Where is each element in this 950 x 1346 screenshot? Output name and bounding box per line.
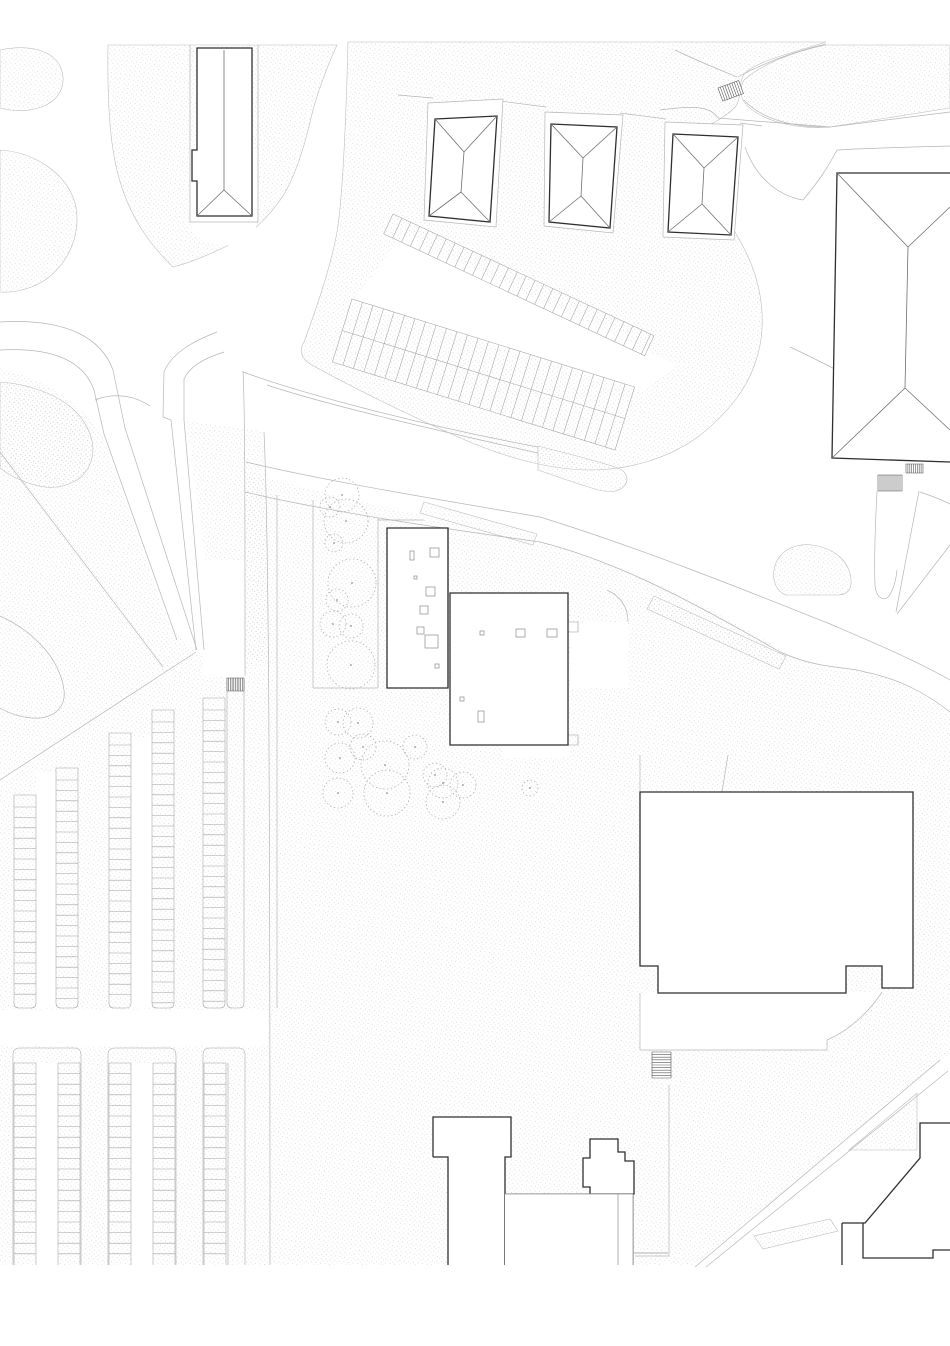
- skylight-4: [420, 606, 428, 614]
- tree-center-9: [337, 721, 339, 723]
- tree-center-4: [351, 582, 353, 584]
- tree-center-7: [350, 625, 352, 627]
- terrace-east-of-center: [570, 622, 628, 688]
- site-plan-canvas: [0, 0, 950, 1346]
- tree-center-14: [414, 746, 416, 748]
- stairs-hall-ne-b: [878, 475, 902, 491]
- terrace-below-center: [503, 745, 570, 758]
- veg-corner-northwest: [0, 48, 63, 111]
- tree-center-16: [386, 792, 388, 794]
- skylight-0: [410, 551, 414, 560]
- road-north-of-hall: [837, 146, 950, 150]
- tree-center-18: [442, 782, 444, 784]
- lawn-round-west: [0, 150, 77, 292]
- tree-center-8: [350, 664, 352, 666]
- tree-center-20: [442, 801, 444, 803]
- hall-east-body: [640, 792, 913, 993]
- aisle-upper-2: [131, 737, 152, 1008]
- slab-building-northwest-body: [192, 48, 252, 216]
- aisle-lower-1: [36, 1063, 58, 1265]
- stairs-apron: [652, 1052, 671, 1078]
- road-south-curve-2: [803, 150, 837, 200]
- lawn-island-west: [0, 382, 93, 487]
- skylight-3: [426, 587, 435, 596]
- ground-top-center: [301, 42, 826, 470]
- hall-northeast-body: [832, 173, 950, 462]
- tree-center-6: [332, 623, 334, 625]
- tree-center-11: [362, 746, 364, 748]
- road-south-curve-1: [745, 147, 803, 200]
- parking-cross-road: [0, 1010, 268, 1046]
- tree-center-13: [384, 764, 386, 766]
- skylight-7: [435, 664, 439, 668]
- landscape-berm: [774, 545, 852, 595]
- skylight-12: [478, 711, 484, 722]
- tree-center-19: [462, 784, 464, 786]
- stair-path-channel: [203, 560, 245, 677]
- island-tail: [95, 396, 150, 406]
- skylight-8: [480, 631, 484, 635]
- tree-center-17: [434, 774, 436, 776]
- aisle-lower-2: [131, 1063, 153, 1265]
- skylight-10: [547, 629, 557, 637]
- skylight-9: [516, 629, 525, 637]
- skylight-2: [414, 576, 417, 579]
- tree-center-10: [357, 722, 359, 724]
- house-2-body: [549, 124, 617, 228]
- road-island-strip: [754, 1219, 838, 1249]
- stairs-walkway: [227, 678, 244, 691]
- east-road-edge-b: [920, 492, 950, 504]
- tree-center-12: [339, 757, 341, 759]
- center-building-east-wing-body: [450, 593, 568, 745]
- tree-center-21: [529, 787, 531, 789]
- skylight-1: [430, 548, 439, 557]
- skylight-6: [425, 635, 438, 648]
- tree-center-0: [341, 494, 343, 496]
- tree-center-15: [337, 792, 339, 794]
- south-structure-body: [505, 1194, 633, 1265]
- tree-center-5: [336, 599, 338, 601]
- tree-center-3: [333, 542, 335, 544]
- skylight-5: [417, 627, 424, 634]
- tree-center-2: [345, 520, 347, 522]
- skylight-11: [460, 697, 464, 701]
- stairs-hall-ne-a: [906, 464, 923, 473]
- site-plan: [0, 0, 950, 1346]
- aisle-upper-1: [36, 772, 56, 1008]
